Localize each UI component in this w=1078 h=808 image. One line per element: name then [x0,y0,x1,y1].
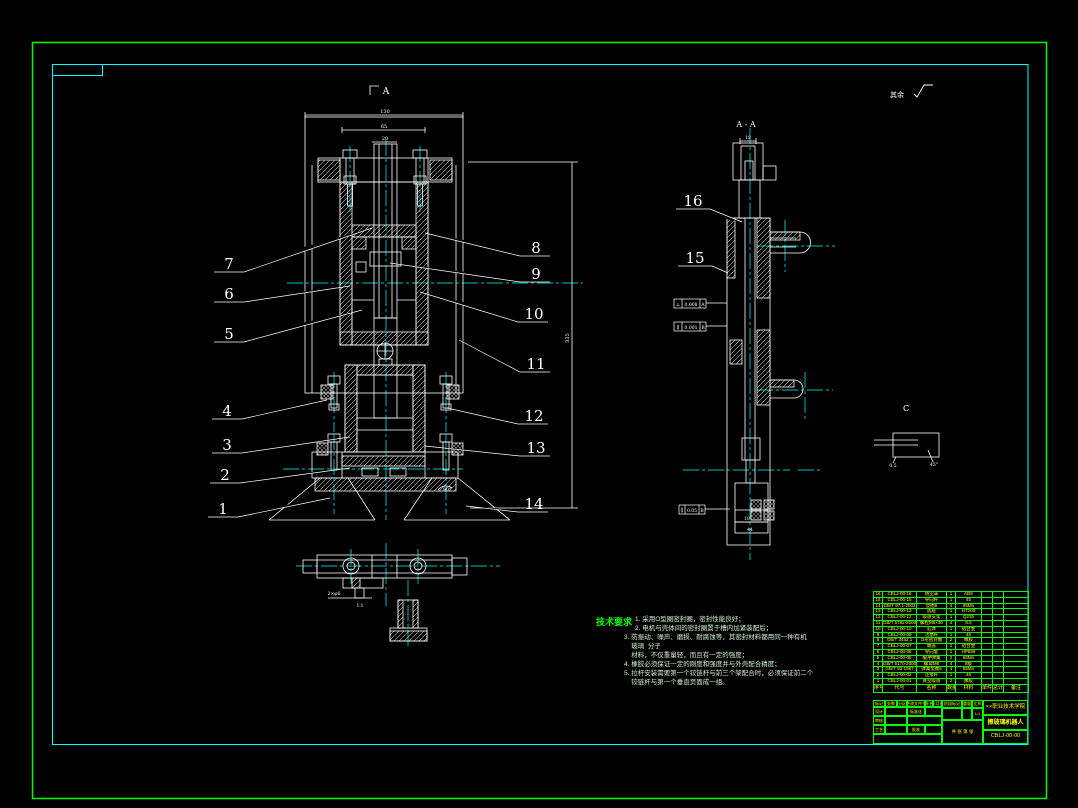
field-change: 更改文件号 [907,700,925,707]
dim-side-top: 18 [745,135,751,141]
field-check: 审核 [873,716,885,725]
dim-side-b1: 18 [744,516,750,522]
svg-text:11: 11 [526,355,545,373]
callout-1: 1 [208,498,330,518]
svg-text:7: 7 [224,255,234,273]
svg-text:∥: ∥ [677,324,679,331]
svg-text:14: 14 [524,495,543,513]
field-process: 工艺 [873,725,885,734]
svg-text:1: 1 [218,500,228,518]
centerlines [283,128,835,648]
field-blank [942,708,962,720]
svg-text:0.05: 0.05 [687,508,697,514]
field-sheets: 共 张 第 张 [942,720,983,744]
cad-canvas: 其余 A A - A C 130 65 20 335 90° 2×φ6 1∶1 … [0,0,1078,808]
svg-text:6: 6 [224,285,234,303]
bom-body: 16CBLJ-00-16防尘罩1ABS15CBLJ-00-15导向杆14514G… [874,592,1029,693]
field-blank [907,716,942,725]
field-approve: 批准 [907,725,925,734]
callout-15: 15 [678,249,728,273]
svg-text:15: 15 [685,249,704,267]
dim-detail-a: 0.5 [889,463,896,469]
callout-4: 4 [212,400,327,420]
dim-scale: 1∶1 [357,603,364,609]
surface-finish: 其余 [890,85,933,99]
side-view [727,138,811,545]
field-weight: 重量 [962,700,972,708]
svg-text:4: 4 [222,402,232,420]
field-blank [885,716,907,725]
callout-10: 10 [420,292,548,323]
callout-3: 3 [212,436,350,454]
field-blank [925,707,942,716]
dim-top-inner: 20 [382,136,388,142]
svg-text:5: 5 [224,325,234,343]
callout-14: 14 [466,495,548,513]
svg-text:9: 9 [531,265,541,283]
callout-11: 11 [459,340,550,373]
title-block: 标记 处数 分区 更改文件号 签名 年月日 设计 标准化 审核 工艺 批准 阶段… [873,700,1028,744]
svg-text:B: B [701,325,705,331]
dim-angle: 90° [443,487,452,493]
dim-foot: 2×φ6 [328,591,341,597]
tolerance-frame-3: ∥ 0.05 B [679,505,730,514]
field-count: 处数 [885,700,897,707]
svg-text:∥: ∥ [681,507,683,514]
dim-top-mid: 65 [381,124,387,130]
note-line: 5. 拉杆安装需要第一个铰链杆与前三个架配合时，必须保证前二个 [624,669,826,678]
svg-text:0.001: 0.001 [685,325,698,331]
field-blank [873,734,942,744]
field-blank [885,725,907,734]
svg-text:8: 8 [531,239,541,257]
note-line: 材料，不仅重量轻，而且有一定的强度； [624,651,826,660]
dim-top-outer: 130 [380,109,390,115]
note-line: 铰链杆与第一个垂直页面成一组。 [624,678,826,687]
svg-text:3: 3 [222,436,232,454]
callout-12: 12 [447,407,548,425]
school-name: ××职业技术学院 [983,700,1028,715]
svg-text:A: A [700,302,705,308]
side-section-label: A - A [735,120,756,129]
field-blank [885,707,907,716]
field-mark: 标记 [873,700,885,707]
field-date: 年月日 [933,700,942,707]
svg-text:2: 2 [220,466,230,484]
tolerance-frames: ⊥ 0.008 A ∥ 0.001 B ∥ 0.05 B [674,299,730,514]
notes-title: 技术要求 [596,615,632,628]
detail-label: C [903,404,909,413]
svg-text:0.008: 0.008 [685,302,698,308]
svg-text:10: 10 [524,305,543,323]
callout-9: 9 [390,263,550,283]
field-scale-value: 1:1 [972,708,983,720]
technical-notes: 技术要求 1. 采用O型圈密封圈，密封性能良好； 2. 电机与壳体间的密封圈置于… [596,615,826,687]
field-zone: 分区 [897,700,907,707]
field-blank [925,725,942,734]
callout-8: 8 [425,233,550,257]
surface-finish-label: 其余 [890,90,904,99]
parts-table: 16CBLJ-00-16防尘罩1ABS15CBLJ-00-15导向杆14514G… [873,591,1029,693]
note-line: 2. 电机与壳体间的密封圈置于槽内加紧装配后； [624,624,826,633]
field-standard: 标准化 [907,707,925,716]
tolerance-frame-2: ∥ 0.001 B [674,322,727,331]
note-line: 3. 防振动、噪声、磨损、耐腐蚀等，其密封材料都用同一种有机 [624,633,826,642]
svg-text:13: 13 [526,439,545,457]
svg-text:⊥: ⊥ [676,302,681,308]
bottom-view [303,555,467,641]
field-sign: 签名 [925,700,933,707]
note-line: 4. 橡胶必须保证一定的刚度和强度并与外壳配合精度； [624,660,826,669]
field-stage: 阶段标记 [942,700,962,708]
dim-side-b2: 44 [747,527,753,533]
drawing-number: CBLJ-00-00 [983,730,1028,744]
svg-text:B: B [700,508,704,514]
callout-16: 16 [676,192,742,222]
dimensions: A A - A C 130 65 20 335 90° 2×φ6 1∶1 18 … [328,87,938,609]
dim-height: 335 [565,333,571,343]
dim-detail-b: 45° [930,462,938,468]
drawing-title: 擦玻璃机器人 [983,715,1028,730]
tolerance-frame-1: ⊥ 0.008 A [674,299,727,308]
svg-text:16: 16 [683,192,702,210]
table-header-row: 序号代号名称数量材料单件总计备注 [874,684,1029,692]
callout-6: 6 [214,285,350,303]
note-line: 玻璃 分子 [624,642,826,651]
field-blank [962,708,972,720]
detail-view-c [874,433,939,463]
field-scale: 比例 [972,700,983,708]
svg-text:12: 12 [524,407,543,425]
roughness-icon [914,85,933,97]
field-design: 设计 [873,707,885,716]
front-section-mark: A [382,87,390,97]
